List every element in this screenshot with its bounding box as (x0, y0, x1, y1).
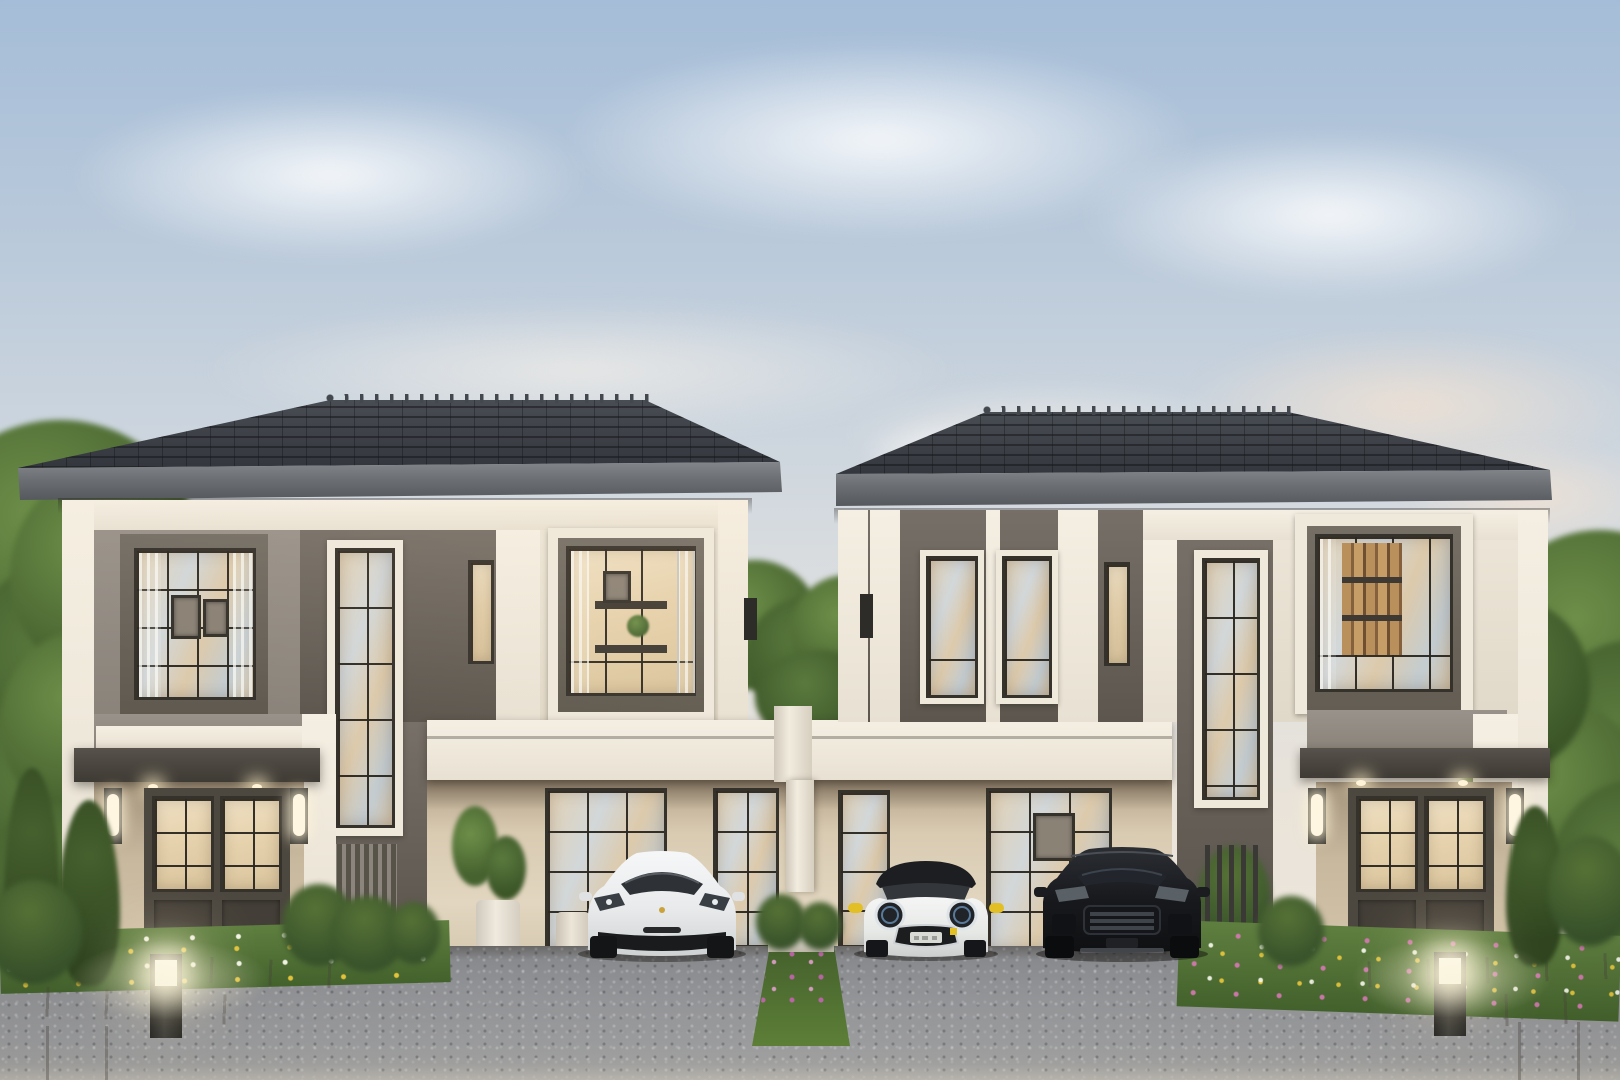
vignette-overlay (0, 0, 1620, 1080)
architectural-rendering (0, 0, 1620, 1080)
